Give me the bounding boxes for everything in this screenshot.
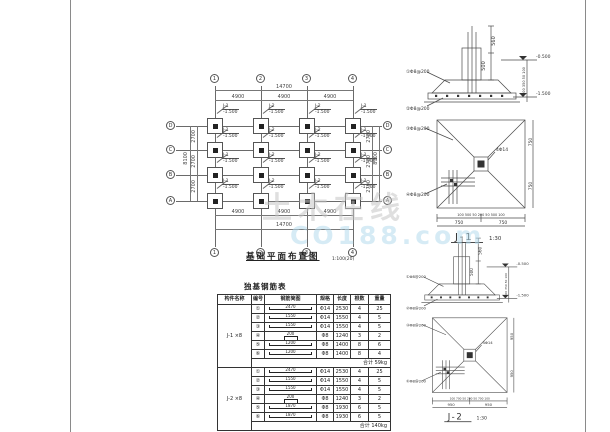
- plan-dim: 950: [509, 332, 514, 340]
- section-dim: 560: [478, 246, 483, 254]
- footing: J-2-1.500: [299, 193, 315, 209]
- plan-dim: 950: [485, 402, 493, 407]
- footing-label: J-2-1.500: [314, 179, 331, 190]
- detail-j2-drawing: 560 500 ①Φ8@200 ②Φ8@200 -0.500 -1.500 10…: [405, 233, 554, 423]
- footing-label: J-1-1.500: [360, 179, 377, 190]
- footing-label: J-2-1.500: [314, 104, 331, 115]
- footing: J-1-1.500: [345, 193, 361, 209]
- plan-dim: 750: [499, 220, 508, 226]
- column-mark: [305, 124, 310, 129]
- plan-dim: 750: [528, 138, 534, 147]
- rebar-leader-label: ②Φ8@200: [406, 305, 426, 310]
- bar-diagram: 1870: [265, 404, 316, 412]
- bar-diagram: 1200: [265, 350, 316, 358]
- footing: J-1-1.500: [207, 167, 223, 183]
- footing: J-2-1.500: [299, 118, 315, 134]
- axis-bubble: 4: [348, 74, 357, 83]
- col-header: 根数: [351, 295, 369, 305]
- column-rebar-label: 4Φ14: [496, 147, 508, 153]
- footing-label: J-1-1.500: [222, 104, 239, 115]
- sheet-border-right: [585, 0, 586, 432]
- axis-bubble: D: [166, 121, 175, 130]
- column-mark: [305, 199, 310, 204]
- col-header: 钢筋简图: [265, 295, 317, 305]
- dim-line: [215, 229, 353, 230]
- axis-bubble: A: [166, 196, 175, 205]
- axis-bubble: 4: [348, 248, 357, 257]
- bar-diagram: 1550: [265, 323, 316, 331]
- axis-bubble: C: [166, 145, 175, 154]
- rebar-leader-label: ④Φ8@200: [406, 192, 430, 198]
- bar-diagram: 1870: [265, 413, 316, 421]
- footing: J-1-1.500: [345, 142, 361, 158]
- axis-bubble: B: [166, 170, 175, 179]
- dim-seg: 4900: [324, 94, 337, 100]
- section-dim-chain: 100 350 50 100: [504, 273, 508, 297]
- section-dim: 500: [481, 61, 487, 71]
- footing-label: J-2-1.500: [268, 128, 285, 139]
- total-label: 合计: [363, 360, 373, 366]
- dim-total-left: 8100: [183, 152, 189, 165]
- dim-seg: 4900: [232, 209, 245, 215]
- footing: J-2-1.500: [253, 167, 269, 183]
- section-dim-chain: 100 350 50 100: [522, 67, 526, 95]
- column-mark: [259, 124, 264, 129]
- axis-bubble: D: [383, 121, 392, 130]
- column-mark: [351, 148, 356, 153]
- total-value: 59kg: [375, 360, 387, 366]
- column-mark: [259, 199, 264, 204]
- elevation-label: -1.500: [536, 91, 551, 97]
- plan-title: 基础平面布置图: [246, 250, 320, 262]
- axis-bubble: C: [383, 145, 392, 154]
- footing-label: J-2-1.500: [314, 128, 331, 139]
- rebar-leader-label: ③Φ8@200: [406, 126, 430, 132]
- section-dim: 560: [491, 36, 497, 46]
- column-mark: [259, 148, 264, 153]
- bar-diagram: 2470: [265, 368, 316, 376]
- detail-j1-drawing: 560 500 ①Φ8@200 ②Φ8@200 -0.500 -1.500 10…: [405, 20, 580, 244]
- footing: J-2-1.500: [299, 167, 315, 183]
- table-row: J-2 ×8 ① 2470 Φ14 2530 4 25: [218, 368, 391, 377]
- group-name: J-2 ×8: [218, 368, 252, 431]
- group-name: J-1 ×8: [218, 305, 252, 368]
- dim-line: [215, 90, 353, 91]
- footing: J-1-1.500: [207, 118, 223, 134]
- dim-seg: 2700: [191, 130, 197, 143]
- plan-dim: 950: [509, 370, 514, 378]
- bar-diagram: 1550: [265, 386, 316, 394]
- column-mark: [213, 199, 218, 204]
- dim-line: [197, 126, 198, 201]
- column-mark: [259, 173, 264, 178]
- rebar-leader-label: ①Φ8@200: [406, 274, 426, 279]
- elevation-label: -0.500: [536, 54, 551, 60]
- column-mark: [213, 148, 218, 153]
- bar-diagram: 1200: [265, 341, 316, 349]
- table-row: J-1 ×8 ① 2470 Φ14 2530 4 25: [218, 305, 391, 314]
- plan-dim: 750: [528, 182, 534, 191]
- footing: J-2-1.500: [253, 193, 269, 209]
- plan-dim: 950: [447, 402, 455, 407]
- footing-label: J-1-1.500: [222, 128, 239, 139]
- rebar-leader-label: ③Φ8@200: [406, 322, 426, 327]
- column-mark: [305, 148, 310, 153]
- dim-line: [215, 100, 353, 101]
- axis-bubble: 1: [210, 74, 219, 83]
- footing-label: J-2-1.500: [268, 179, 285, 190]
- rebar-table-title: 独基钢筋表: [244, 281, 287, 292]
- stirrup-diagram: 200: [265, 395, 316, 403]
- column-mark: [351, 199, 356, 204]
- detail-j1: 560 500 ①Φ8@200 ②Φ8@200 -0.500 -1.500 10…: [405, 20, 580, 248]
- footing: J-2-1.500: [253, 118, 269, 134]
- sheet-border-left: [70, 0, 71, 432]
- footing-label: J-2-1.500: [314, 153, 331, 164]
- rebar-leader-label: ④Φ8@200: [406, 378, 426, 383]
- dim-seg: 4900: [232, 94, 245, 100]
- drawing-sheet: 1 2 3 4 1 2 3 4 D C B A D C B A 14700 49…: [0, 0, 610, 432]
- bar-diagram: 2470: [265, 305, 316, 313]
- total-label: 合计: [360, 423, 370, 429]
- col-header: 长度: [334, 295, 351, 305]
- dim-total-bottom: 14700: [276, 222, 292, 228]
- footing: J-1-1.500: [207, 193, 223, 209]
- column-mark: [213, 173, 218, 178]
- elevation-label: -1.500: [516, 293, 529, 298]
- footing-label: J-2-1.500: [268, 104, 285, 115]
- plan-dim-chain: 100 500 50 200 50 500 100: [457, 213, 504, 217]
- dim-seg: 2700: [191, 180, 197, 193]
- col-header: 构件名称: [218, 295, 252, 305]
- rebar-leader-label: ①Φ8@200: [406, 69, 430, 75]
- bar-diagram: 1550: [265, 314, 316, 322]
- footing-label: J-1-1.500: [360, 104, 377, 115]
- rebar-leader-label: ②Φ8@200: [406, 106, 430, 112]
- dim-total-top: 14700: [276, 84, 292, 90]
- footing: J-1-1.500: [345, 118, 361, 134]
- footing: J-2-1.500: [253, 142, 269, 158]
- detail-title: J-2: [447, 412, 464, 422]
- col-header: 重量: [369, 295, 391, 305]
- axis-bubble: A: [383, 196, 392, 205]
- column-mark: [213, 124, 218, 129]
- footing: J-1-1.500: [207, 142, 223, 158]
- footing-label: J-1-1.500: [360, 128, 377, 139]
- footing-label: J-2-1.500: [268, 153, 285, 164]
- column-mark: [351, 173, 356, 178]
- rebar-table: 构件名称 编号 钢筋简图 规格 长度 根数 重量 J-1 ×8 ① 2470 Φ…: [217, 294, 391, 431]
- axis-bubble: 1: [210, 248, 219, 257]
- column-rebar-label: 4Φ14: [482, 340, 493, 345]
- footing-label: J-1-1.500: [222, 179, 239, 190]
- detail-scale: 1:30: [477, 416, 487, 422]
- footing-label: J-1-1.500: [360, 153, 377, 164]
- col-header: 规格: [317, 295, 334, 305]
- plan-dim: 750: [455, 220, 464, 226]
- dim-seg: 4900: [278, 209, 291, 215]
- footing: J-2-1.500: [299, 142, 315, 158]
- dim-seg: 4900: [278, 94, 291, 100]
- table-header-row: 构件名称 编号 钢筋简图 规格 长度 根数 重量: [218, 295, 391, 305]
- col-header: 编号: [252, 295, 265, 305]
- dim-line: [379, 126, 380, 201]
- dim-seg: 4900: [324, 209, 337, 215]
- stirrup-diagram: 200: [265, 332, 316, 340]
- dim-line: [215, 215, 353, 216]
- axis-bubble: 3: [302, 74, 311, 83]
- axis-bubble: B: [383, 170, 392, 179]
- column-mark: [351, 124, 356, 129]
- plan-dim-chain: 100 700 50 200 50 700 100: [450, 396, 490, 400]
- column-mark: [305, 173, 310, 178]
- total-value: 140kg: [371, 423, 387, 429]
- detail-j2: 560 500 ①Φ8@200 ②Φ8@200 -0.500 -1.500 10…: [405, 233, 554, 427]
- plan-scale: 1:100(20): [332, 257, 354, 262]
- elevation-label: -0.500: [516, 261, 529, 266]
- dim-seg: 2700: [191, 155, 197, 168]
- footing-label: J-1-1.500: [222, 153, 239, 164]
- section-dim: 500: [469, 268, 474, 276]
- footing: J-1-1.500: [345, 167, 361, 183]
- axis-bubble: 2: [256, 74, 265, 83]
- bar-diagram: 1550: [265, 377, 316, 385]
